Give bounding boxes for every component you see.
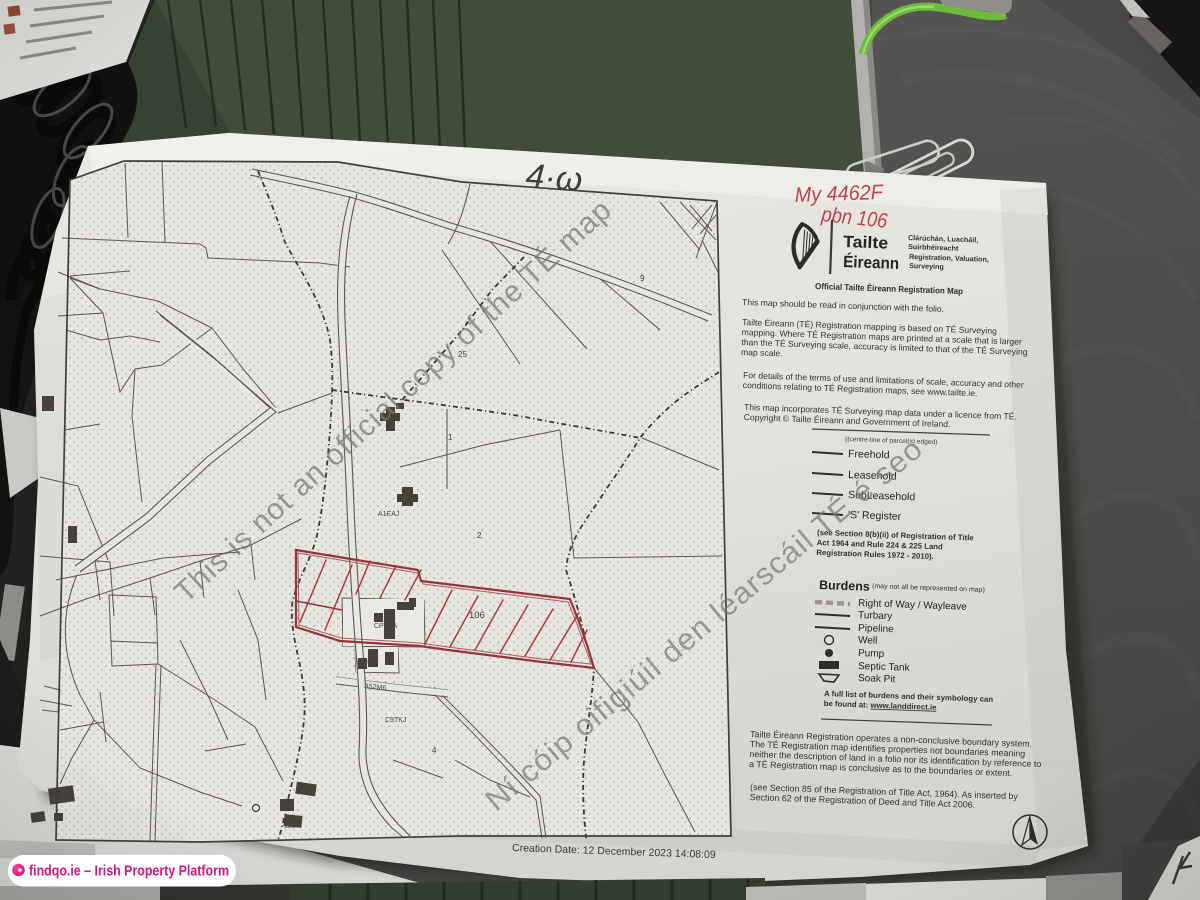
svg-text:findqo.ie – Irish Property Pla: findqo.ie – Irish Property Platform: [29, 864, 229, 880]
